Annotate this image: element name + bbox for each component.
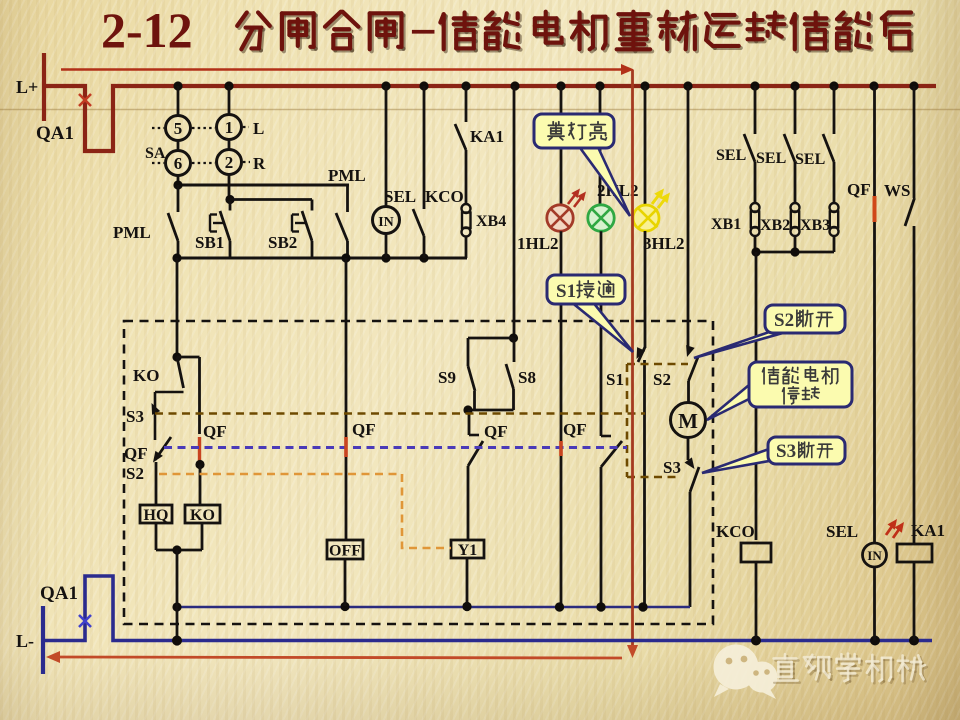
svg-text:1HL2: 1HL2	[517, 234, 559, 253]
svg-text:6: 6	[174, 154, 183, 173]
svg-text:2-12: 2-12	[101, 2, 193, 58]
svg-text:L: L	[253, 119, 264, 138]
svg-text:XB2: XB2	[760, 217, 790, 234]
svg-text:5: 5	[174, 119, 183, 138]
svg-text:SEL: SEL	[716, 147, 746, 164]
svg-text:QF: QF	[124, 444, 148, 463]
svg-text:HQ: HQ	[144, 507, 169, 524]
svg-text:SEL: SEL	[384, 187, 416, 206]
svg-text:L+: L+	[16, 77, 38, 97]
svg-text:IN: IN	[378, 215, 394, 230]
svg-text:R: R	[253, 154, 266, 173]
svg-text:SB1: SB1	[195, 233, 224, 252]
svg-text:XB3: XB3	[800, 217, 830, 234]
svg-text:SEL: SEL	[795, 151, 825, 168]
svg-text:QF: QF	[563, 420, 587, 439]
svg-text:IN: IN	[867, 548, 882, 563]
svg-text:KCO: KCO	[425, 187, 464, 206]
svg-text:S2: S2	[126, 464, 144, 483]
svg-text:S2: S2	[774, 310, 794, 331]
svg-text:SEL: SEL	[826, 522, 858, 541]
svg-text:Y1: Y1	[458, 542, 478, 559]
svg-text:KA1: KA1	[470, 127, 504, 146]
svg-text:S1: S1	[556, 281, 576, 302]
svg-text:QA1: QA1	[36, 123, 74, 144]
svg-text:QF: QF	[203, 422, 227, 441]
svg-text:S1: S1	[606, 370, 624, 389]
svg-text:PML: PML	[328, 166, 366, 185]
svg-text:SA: SA	[145, 145, 166, 162]
svg-text:S8: S8	[518, 368, 536, 387]
svg-text:XB4: XB4	[476, 213, 506, 230]
svg-text:S2: S2	[653, 370, 671, 389]
svg-text:PML: PML	[113, 223, 151, 242]
svg-text:KCO: KCO	[716, 522, 755, 541]
svg-text:1: 1	[225, 118, 234, 137]
svg-text:L-: L-	[16, 631, 34, 651]
svg-text:KO: KO	[190, 507, 215, 524]
svg-text:QF: QF	[484, 422, 508, 441]
svg-text:M: M	[678, 409, 698, 433]
svg-text:SB2: SB2	[268, 233, 297, 252]
svg-text:S3: S3	[663, 458, 681, 477]
svg-text:QF: QF	[847, 180, 871, 199]
svg-text:QF: QF	[352, 420, 376, 439]
svg-text:KA1: KA1	[911, 521, 945, 540]
svg-text:SEL: SEL	[756, 150, 786, 167]
svg-text:2: 2	[225, 153, 234, 172]
svg-text:KO: KO	[133, 366, 159, 385]
svg-text:XB1: XB1	[711, 216, 741, 233]
svg-text:QA1: QA1	[40, 583, 78, 604]
svg-text:3HL2: 3HL2	[643, 234, 685, 253]
svg-text:WS: WS	[884, 181, 910, 200]
svg-text:S3: S3	[126, 407, 144, 426]
svg-text:S3: S3	[776, 441, 796, 462]
svg-text:OFF: OFF	[329, 543, 361, 560]
svg-text:S9: S9	[438, 368, 456, 387]
